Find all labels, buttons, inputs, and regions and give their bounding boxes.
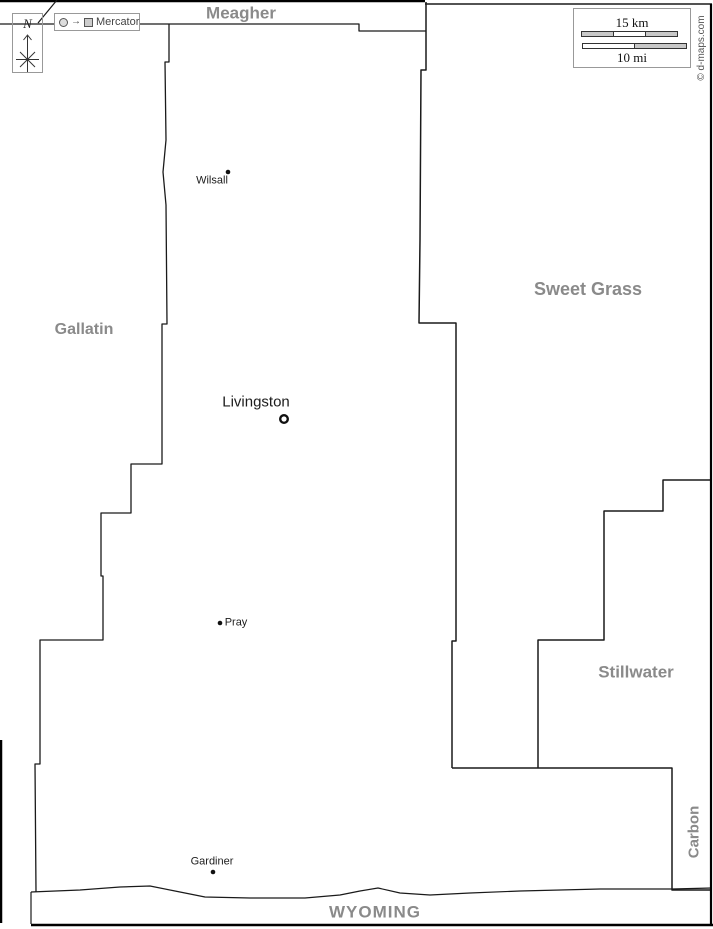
scale-km-segment [614, 31, 646, 37]
globe-circle-icon [59, 18, 68, 27]
county-label-gallatin: Gallatin [55, 322, 114, 338]
pray-dot-marker [218, 621, 223, 626]
boundary-wyoming-state-line [31, 886, 712, 898]
scale-km-label: 15 km [616, 16, 649, 29]
city-label-gardiner: Gardiner [191, 857, 234, 868]
boundary-stillwater-steps [538, 480, 712, 768]
projection-box: → Mercator [54, 13, 140, 31]
scale-box: 15 km 10 mi [573, 8, 691, 68]
gardiner-dot-marker [211, 870, 216, 875]
scale-km-segment [646, 31, 678, 37]
park-county-map: Meagher Gallatin Sweet Grass Stillwater … [0, 0, 713, 929]
projection-arrow-icon: → [71, 17, 81, 27]
state-label-wyoming: WYOMING [329, 904, 421, 921]
boundary-stillwater-carbon-south [452, 768, 712, 890]
scale-mi-label: 10 mi [617, 51, 647, 64]
county-label-stillwater: Stillwater [598, 664, 674, 681]
compass-box: N [12, 13, 43, 73]
scale-km-segment [581, 31, 614, 37]
county-label-meagher: Meagher [206, 5, 276, 22]
map-boundaries-layer [0, 0, 713, 929]
scale-mi-segment [582, 43, 635, 49]
county-label-carbon: Carbon [687, 806, 702, 859]
city-label-pray: Pray [225, 618, 248, 629]
city-label-wilsall: Wilsall [196, 176, 228, 187]
boundary-gallatin-park [35, 24, 169, 892]
scale-mi-segment [635, 43, 687, 49]
scale-bar-km [581, 31, 678, 35]
projection-label: Mercator [96, 16, 139, 28]
city-label-livingston: Livingston [222, 395, 290, 410]
livingston-county-seat-marker [280, 415, 288, 423]
dmaps-credit: © d-maps.com [697, 15, 707, 80]
county-label-sweet-grass: Sweet Grass [534, 280, 642, 298]
flat-map-square-icon [84, 18, 93, 27]
scale-bar-mi [582, 43, 687, 47]
compass-rose-icon [13, 28, 42, 73]
boundary-sweetgrass-west [419, 2, 456, 768]
